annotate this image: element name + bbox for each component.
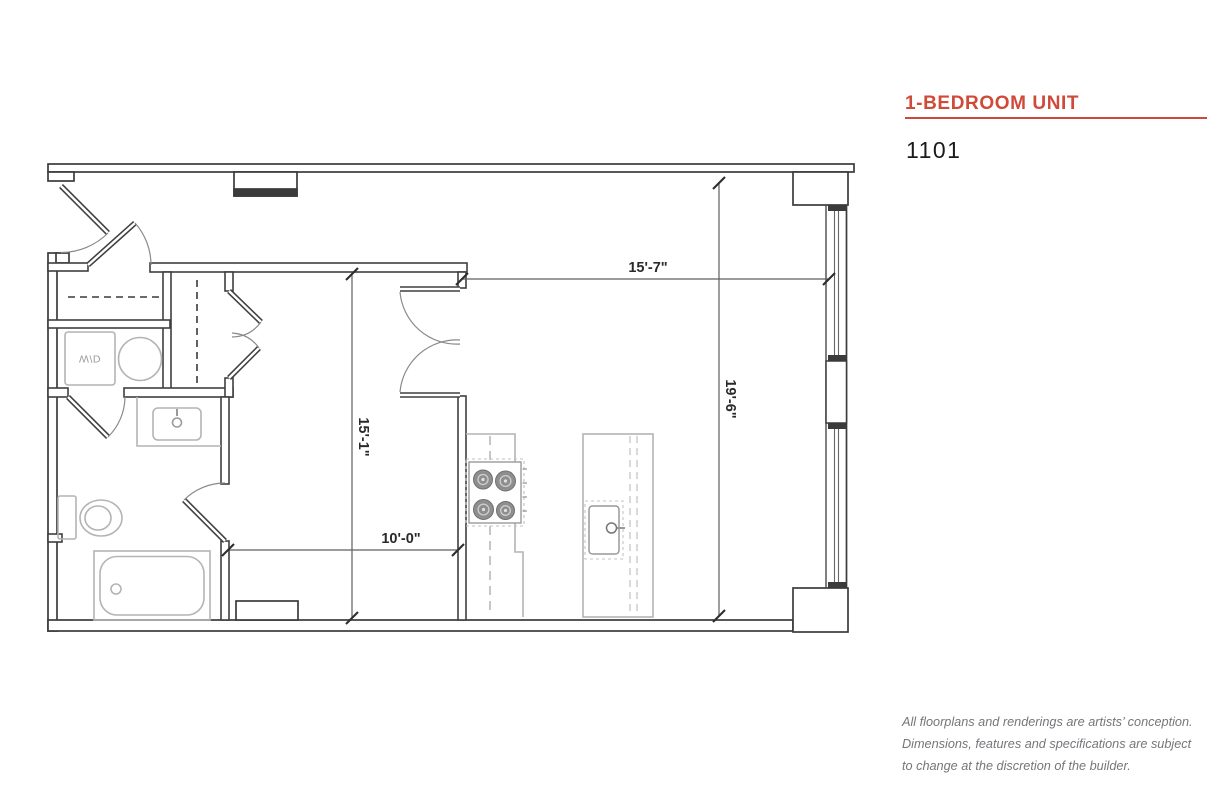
wall-segment: [48, 164, 854, 172]
wall-segment: [236, 601, 298, 620]
bathtub-drain: [111, 584, 121, 594]
floorplan-drawing: W/D: [0, 0, 1228, 794]
wall-segment: [225, 378, 233, 397]
bathtub-basin: [100, 557, 204, 616]
window-cap: [828, 423, 847, 429]
dimension-label: 19'-6": [722, 379, 738, 418]
floorplan-page: W/D: [0, 0, 1228, 794]
door-swing-arc: [400, 340, 460, 392]
vanity-counter: [137, 397, 221, 446]
hall-closet-door: [88, 223, 151, 265]
dimension-living-width: 15'-7": [456, 260, 835, 285]
title-underline: [905, 117, 1207, 119]
door-swing-arc: [135, 223, 151, 265]
wall-segment: [56, 253, 69, 263]
dimension-living-depth: 19'-6": [713, 177, 738, 622]
washer-dryer-label: W/D: [79, 353, 101, 365]
wall-segment: [48, 253, 57, 631]
dimension-label: 15'-7": [628, 260, 667, 276]
dimension-label: 15'-1": [355, 417, 371, 456]
wall-segment: [48, 263, 88, 271]
toilet-bowl: [80, 500, 122, 536]
window-cap: [828, 582, 847, 588]
unit-number: 1101: [906, 137, 961, 164]
dimension-label: 10'-0": [381, 531, 420, 547]
dimensions: 15'-7" 19'-6" 15'-1" 10'-0": [222, 177, 835, 624]
wall-segment: [793, 172, 848, 205]
door-swing-arc: [184, 483, 225, 500]
dryer-drum: [119, 338, 162, 381]
wall-segment: [793, 588, 848, 632]
bathroom-hall-door: [68, 397, 125, 437]
wall-segment: [124, 388, 233, 397]
window-cap: [828, 205, 847, 211]
wall-segment: [163, 272, 171, 395]
bedroom-double-doors: [400, 289, 460, 395]
bedroom-closet-bifold: [229, 291, 261, 378]
wall-segment: [48, 620, 793, 631]
wall-segment: [150, 263, 467, 272]
dimension-bedroom-depth: 15'-1": [346, 268, 371, 624]
island-faucet: [607, 523, 617, 533]
toilet-seat: [85, 506, 111, 530]
toilet-tank: [58, 496, 76, 539]
window-cap: [828, 355, 847, 361]
wall-segment: [48, 388, 68, 397]
laundry-appliances: W/D: [65, 332, 162, 385]
wall-segment: [48, 320, 170, 328]
wall-segment: [458, 396, 466, 620]
wall-segment: [48, 172, 74, 181]
entry-door: [61, 186, 108, 253]
wall-segment: [234, 189, 297, 196]
page-title: 1-BEDROOM UNIT: [905, 93, 1079, 115]
bathroom-fixtures: [58, 397, 221, 620]
disclaimer: All floorplans and renderings are artist…: [902, 711, 1202, 777]
kitchen: [466, 434, 653, 617]
door-swing-arc: [400, 292, 460, 344]
wall-segment: [225, 272, 233, 291]
bifold-swing-curves: [232, 322, 261, 348]
disclaimer-line: Dimensions, features and specifications …: [902, 733, 1202, 755]
window-mullion: [826, 361, 847, 423]
door-swing-arc: [108, 397, 125, 437]
disclaimer-line: All floorplans and renderings are artist…: [902, 711, 1202, 733]
faucet: [173, 418, 182, 427]
wall-segment: [48, 534, 62, 542]
window-wall: [826, 205, 847, 588]
disclaimer-line: to change at the discretion of the build…: [902, 755, 1202, 777]
dimension-bedroom-width: 10'-0": [222, 531, 464, 556]
door-swing-arc: [61, 233, 108, 253]
range-knobs: [523, 469, 528, 511]
bathroom-bedroom-door: [184, 483, 225, 541]
wall-segment: [221, 397, 229, 484]
